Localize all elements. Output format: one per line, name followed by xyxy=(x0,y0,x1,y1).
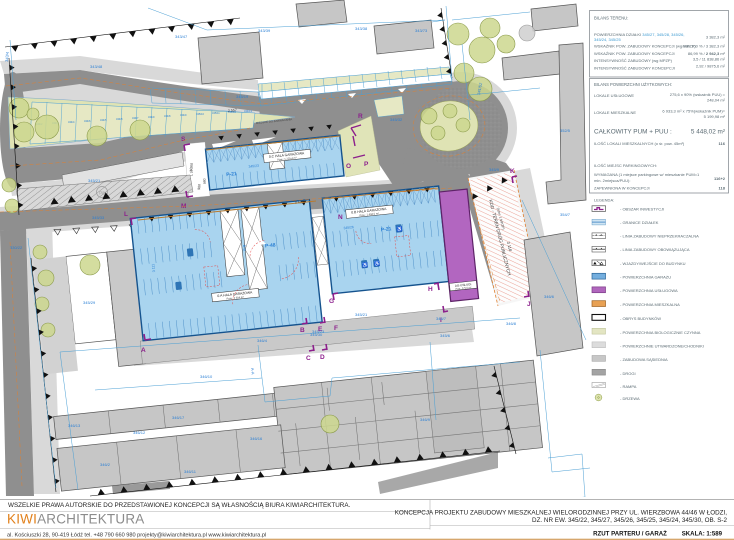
svg-text:P8: P8 xyxy=(99,191,105,196)
svg-text:- POWIERZCHNIA GARAŻU: - POWIERZCHNIA GARAŻU xyxy=(620,275,671,280)
svg-text:WSZELKIE PRAWA AUTORSKIE DO PR: WSZELKIE PRAWA AUTORSKIE DO PRZEDSTAWION… xyxy=(8,500,351,509)
svg-text:ILOŚĆ LOKALI MIESZKALNYCH (o ś: ILOŚĆ LOKALI MIESZKALNYCH (o śr. pow. 45… xyxy=(594,141,685,146)
svg-text:LEGENDA:: LEGENDA: xyxy=(594,198,614,203)
svg-text:118: 118 xyxy=(719,186,726,191)
svg-text:352/5: 352/5 xyxy=(560,128,571,133)
svg-text:345/9: 345/9 xyxy=(489,167,500,172)
svg-text:344/9: 344/9 xyxy=(148,115,155,119)
svg-text:343/48: 343/48 xyxy=(90,64,103,69)
svg-text:346/10: 346/10 xyxy=(200,374,213,379)
svg-text:- DROGI: - DROGI xyxy=(620,371,636,376)
svg-text:344/8: 344/8 xyxy=(164,114,171,118)
svg-text:345/21: 345/21 xyxy=(355,312,368,317)
svg-text:5 199,98 m²: 5 199,98 m² xyxy=(704,114,726,119)
svg-text:BILANS TERENU:: BILANS TERENU: xyxy=(594,16,628,21)
svg-text:- GRANICE DZIAŁEK: - GRANICE DZIAŁEK xyxy=(620,220,659,225)
svg-text:346/4: 346/4 xyxy=(257,338,268,343)
svg-text:343/4: 343/4 xyxy=(4,51,10,62)
svg-text:343/38: 343/38 xyxy=(355,26,368,31)
svg-text:346/6: 346/6 xyxy=(544,294,555,299)
svg-text:L: L xyxy=(124,211,128,218)
svg-text:- OBSZAR INWESTYCJI: - OBSZAR INWESTYCJI xyxy=(620,207,664,212)
svg-text:J: J xyxy=(527,301,531,308)
svg-text:P-48: P-48 xyxy=(265,242,276,249)
svg-text:- POWIERZCHNIA USŁUGOWA: - POWIERZCHNIA USŁUGOWA xyxy=(620,288,678,293)
svg-text:344/9: 344/9 xyxy=(180,113,187,117)
svg-text:♿: ♿ xyxy=(374,260,381,268)
svg-text:248,04 m²: 248,04 m² xyxy=(707,98,726,103)
svg-text:- ZABUDOWA SĄSIEDNIA: - ZABUDOWA SĄSIEDNIA xyxy=(620,357,668,362)
svg-text:INTENSYWNOŚĆ ZABUDOWY (wg MPZP: INTENSYWNOŚĆ ZABUDOWY (wg MPZP) xyxy=(594,58,673,63)
svg-text:344/4: 344/4 xyxy=(68,120,75,124)
svg-text:O: O xyxy=(346,163,351,170)
svg-text:345/21: 345/21 xyxy=(88,178,101,183)
svg-text:KONCEPCJA PROJEKTU ZABUDOWY MI: KONCEPCJA PROJEKTU ZABUDOWY MIESZKALNEJ … xyxy=(395,510,728,517)
svg-text:345/19: 345/19 xyxy=(236,94,249,99)
svg-text:SKALA: 1:589: SKALA: 1:589 xyxy=(682,531,723,538)
svg-text:ILOŚĆ MIEJSC PARKINGOWYCH:: ILOŚĆ MIEJSC PARKINGOWYCH: xyxy=(594,163,657,168)
svg-text:P-21: P-21 xyxy=(381,226,392,233)
svg-text:A: A xyxy=(141,347,146,354)
svg-text:CAŁKOWITY PUM + PUU :: CAŁKOWITY PUM + PUU : xyxy=(594,129,672,136)
svg-text:354/7: 354/7 xyxy=(560,212,571,217)
svg-text:346/7: 346/7 xyxy=(436,316,447,321)
svg-text:A-A: A-A xyxy=(250,368,256,375)
svg-text:P-21: P-21 xyxy=(226,171,237,178)
svg-text:H: H xyxy=(428,286,433,293)
svg-text:980: 980 xyxy=(197,184,202,190)
svg-text:346/11: 346/11 xyxy=(184,469,197,474)
svg-text:B: B xyxy=(300,327,305,334)
svg-text:WSKAŹNIK POW. ZABUDOWY KONCEPC: WSKAŹNIK POW. ZABUDOWY KONCEPCJI xyxy=(594,51,675,56)
svg-text:343/73: 343/73 xyxy=(415,28,428,33)
svg-text:♿: ♿ xyxy=(396,226,403,234)
svg-text:B-B: B-B xyxy=(242,245,247,252)
svg-text:LOKALE MIESZKALNE: LOKALE MIESZKALNE xyxy=(594,110,636,115)
svg-text:- DRZEWA: - DRZEWA xyxy=(620,396,640,401)
svg-text:345/32: 345/32 xyxy=(390,117,403,122)
svg-text:345/10: 345/10 xyxy=(196,112,204,116)
svg-text:346/17: 346/17 xyxy=(172,415,185,420)
svg-text:- WJAZDY/WEJŚCIE DO BUDYNKU: - WJAZDY/WEJŚCIE DO BUDYNKU xyxy=(620,261,686,266)
svg-text:3,5 / 11 838,86 m²: 3,5 / 11 838,86 m² xyxy=(693,57,726,62)
svg-text:2,92 / 9875,6 m²: 2,92 / 9875,6 m² xyxy=(696,64,726,69)
svg-text:C: C xyxy=(306,355,311,362)
svg-text:345/6: 345/6 xyxy=(440,333,451,338)
svg-text:S: S xyxy=(181,136,186,143)
svg-text:346/9: 346/9 xyxy=(420,417,431,422)
svg-text:116+2: 116+2 xyxy=(714,176,726,181)
svg-text:WYMAGANA (1 miejsce parkingowe: WYMAGANA (1 miejsce parkingowe w/ mieszk… xyxy=(594,172,700,177)
svg-text:346/16: 346/16 xyxy=(250,436,263,441)
svg-text:- LINIA ZABUDOWY NIEPRZEKRACZA: - LINIA ZABUDOWY NIEPRZEKRACZALNA xyxy=(620,234,699,239)
svg-text:R: R xyxy=(358,113,363,120)
svg-text:LOKALE USŁUGOWE: LOKALE USŁUGOWE xyxy=(594,93,634,98)
svg-text:- POWIERZCHNIE UTWARDZONE/CHOD: - POWIERZCHNIE UTWARDZONE/CHODNIKI xyxy=(620,344,704,349)
svg-text:BILANS POWIERZCHNI UŻYTKOWYCH:: BILANS POWIERZCHNI UŻYTKOWYCH: xyxy=(594,82,672,87)
svg-text:343/47: 343/47 xyxy=(175,34,188,39)
svg-text:- POWIERZCHNIA BIOLOGICZNIE CZ: - POWIERZCHNIA BIOLOGICZNIE CZYNNA xyxy=(620,330,701,335)
svg-text:M: M xyxy=(181,203,186,210)
svg-text:116: 116 xyxy=(719,141,726,146)
svg-text:min. 2miejsca/PUU):: min. 2miejsca/PUU): xyxy=(594,178,630,183)
svg-text:3 382,3 m²: 3 382,3 m² xyxy=(706,35,726,40)
svg-text:INTENSYWNOŚĆ ZABUDOWY KONCEPCJ: INTENSYWNOŚĆ ZABUDOWY KONCEPCJI xyxy=(594,66,675,71)
svg-text:F: F xyxy=(334,325,338,332)
svg-text:346/2: 346/2 xyxy=(100,462,111,467)
svg-text:max.100 % / 3 382,3 m²: max.100 % / 3 382,3 m² xyxy=(683,44,726,49)
svg-text:344/7: 344/7 xyxy=(132,116,139,120)
svg-text:343/39: 343/39 xyxy=(258,28,271,33)
svg-text:KIWIARCHITEKTURA: KIWIARCHITEKTURA xyxy=(7,512,144,527)
svg-text:6 933,3 m² x 75%(wskaźnik PUM): 6 933,3 m² x 75%(wskaźnik PUM)= xyxy=(662,109,725,114)
svg-text:K: K xyxy=(510,168,515,175)
svg-text:345/33: 345/33 xyxy=(92,215,105,220)
svg-text:275,6 x 90% (wskaźnik PUU) =: 275,6 x 90% (wskaźnik PUU) = xyxy=(670,92,726,97)
svg-text:344/8: 344/8 xyxy=(116,117,123,121)
svg-text:346/8: 346/8 xyxy=(506,321,517,326)
svg-text:- OBRYS BUDYNKÓW: - OBRYS BUDYNKÓW xyxy=(620,316,661,321)
svg-text:- RAMPA: - RAMPA xyxy=(620,384,637,389)
svg-text:P: P xyxy=(364,161,369,168)
svg-text:345/11: 345/11 xyxy=(212,111,220,115)
svg-text:330/22: 330/22 xyxy=(10,245,23,250)
svg-text:346/12: 346/12 xyxy=(133,430,146,435)
svg-text:86,99 % / 2 942,3 m²: 86,99 % / 2 942,3 m² xyxy=(688,51,726,56)
svg-text:WSKAŹNIK POW. ZABUDOWY KONCEPC: WSKAŹNIK POW. ZABUDOWY KONCEPCJI (wg MPZ… xyxy=(594,44,696,49)
svg-text:346/13: 346/13 xyxy=(68,423,81,428)
svg-text:5 448,02 m²: 5 448,02 m² xyxy=(691,129,725,136)
svg-text:980: 980 xyxy=(202,178,207,184)
svg-text:RZUT PARTERU / GARAŻ: RZUT PARTERU / GARAŻ xyxy=(593,531,667,538)
svg-text:345/24, 345/25: 345/24, 345/25 xyxy=(594,37,621,42)
svg-text:345/29: 345/29 xyxy=(83,300,96,305)
svg-text:345/23: 345/23 xyxy=(312,329,325,334)
svg-text:DZ. NR EW. 345/22, 345/27, 345: DZ. NR EW. 345/22, 345/27, 345/26, 345/2… xyxy=(532,517,727,524)
svg-text:344/5: 344/5 xyxy=(100,118,107,122)
svg-text:D: D xyxy=(320,354,325,361)
svg-text:N: N xyxy=(338,214,343,221)
svg-text:al. Kościuszki 28, 90-419 Łódź: al. Kościuszki 28, 90-419 Łódź tel. +48 … xyxy=(7,533,266,539)
svg-text:- LINIA ZABUDOWY OBOWIĄZUJĄCA: - LINIA ZABUDOWY OBOWIĄZUJĄCA xyxy=(620,247,690,252)
svg-text:344/6: 344/6 xyxy=(84,119,91,123)
svg-text:344/13: 344/13 xyxy=(244,109,252,113)
svg-text:- POWIERZCHNIA MIESZKALNA: - POWIERZCHNIA MIESZKALNA xyxy=(620,302,680,307)
svg-text:ZAPEWNIONA W KONCEPCJI: ZAPEWNIONA W KONCEPCJI xyxy=(594,186,650,191)
svg-text:♿: ♿ xyxy=(362,261,369,269)
